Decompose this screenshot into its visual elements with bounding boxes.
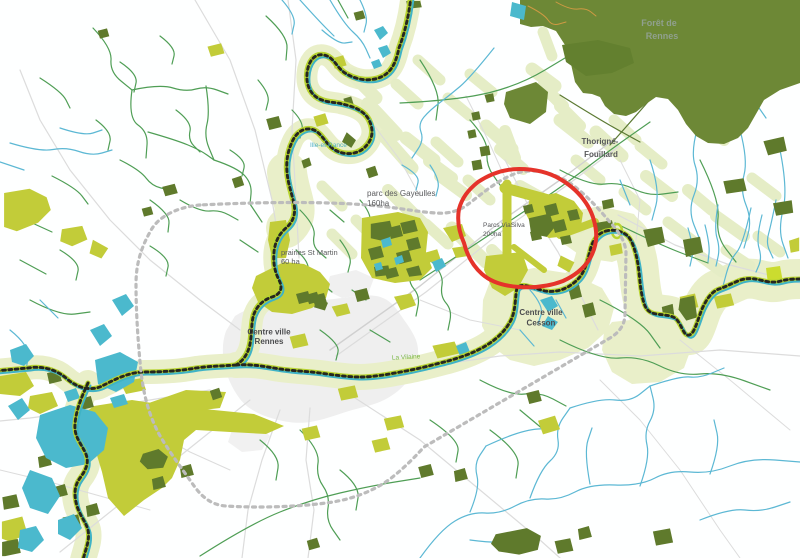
- svg-text:parc des Gayeulles: parc des Gayeulles: [367, 189, 435, 198]
- svg-text:Rennes: Rennes: [646, 31, 679, 41]
- svg-text:Ille-et-Rance: Ille-et-Rance: [310, 142, 347, 149]
- svg-text:160ha: 160ha: [367, 199, 390, 208]
- svg-text:60 ha: 60 ha: [281, 257, 301, 266]
- svg-text:Parcs ViaSilva: Parcs ViaSilva: [483, 222, 525, 229]
- svg-text:Cesson: Cesson: [527, 319, 556, 328]
- svg-text:200ha: 200ha: [483, 231, 501, 238]
- svg-text:Centre ville: Centre ville: [519, 308, 563, 317]
- svg-text:Thorigné-: Thorigné-: [582, 137, 619, 146]
- svg-text:Centre ville: Centre ville: [247, 328, 291, 337]
- svg-text:prairies St Martin: prairies St Martin: [281, 248, 338, 257]
- svg-text:Fouillard: Fouillard: [584, 150, 618, 159]
- svg-text:Rennes: Rennes: [255, 337, 284, 346]
- svg-text:Forêt de: Forêt de: [641, 18, 677, 28]
